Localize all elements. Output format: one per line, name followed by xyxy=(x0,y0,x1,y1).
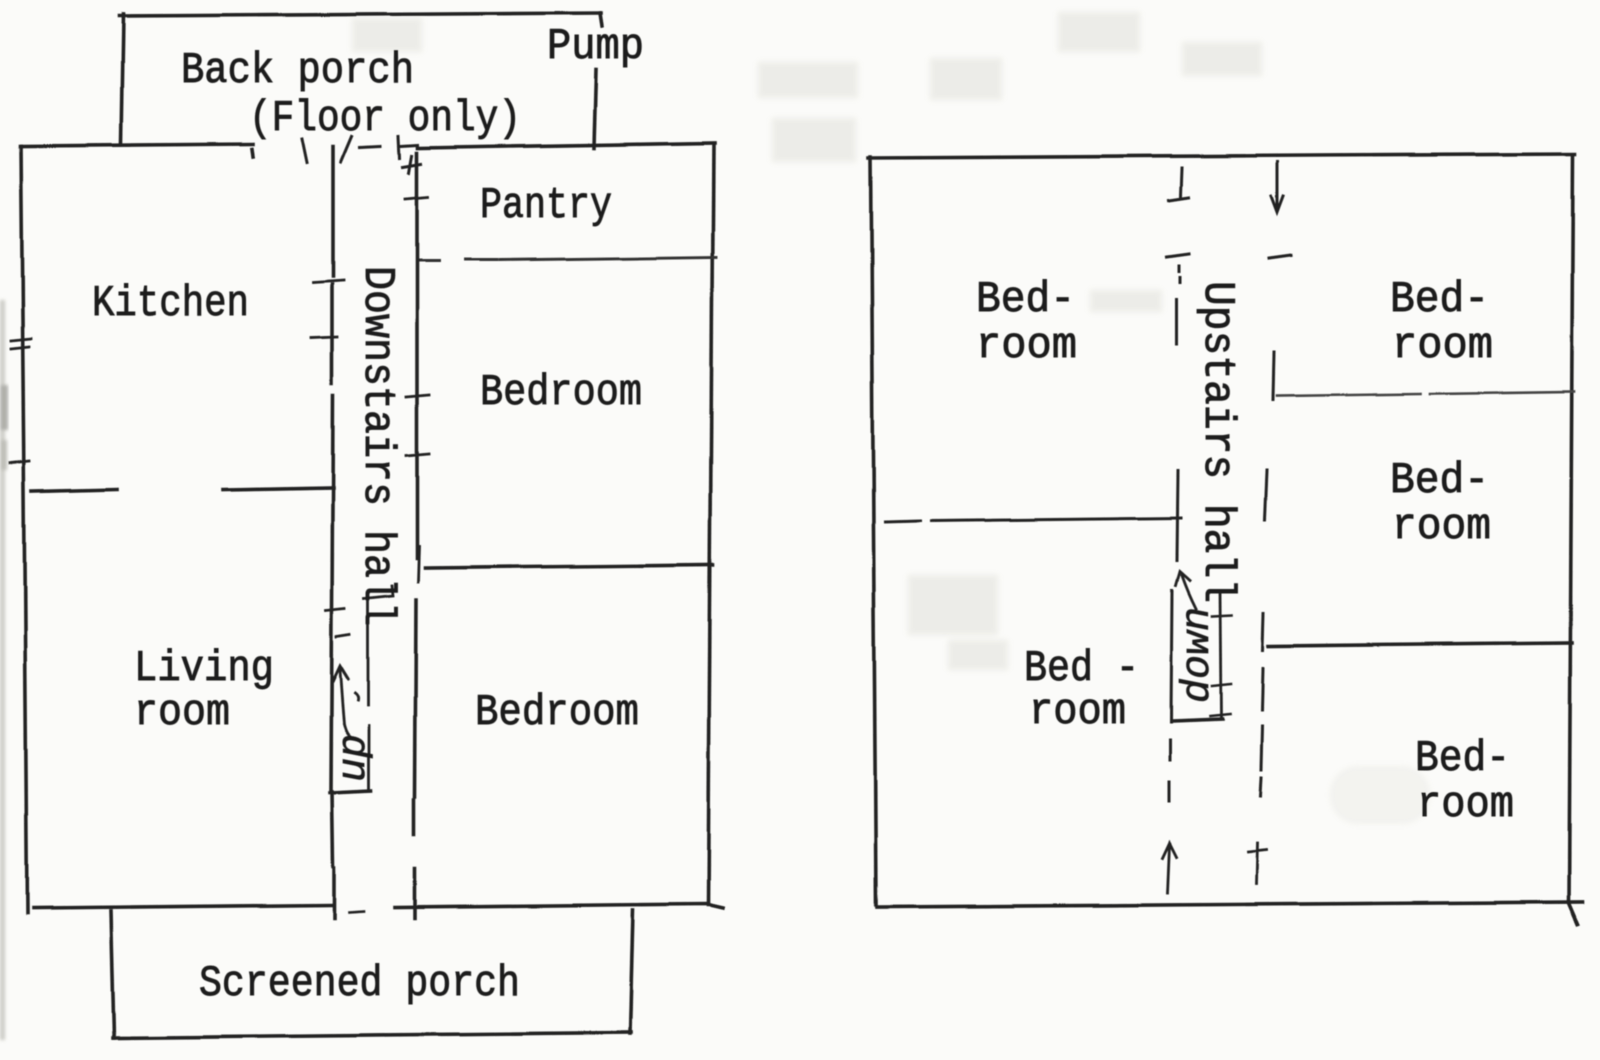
svg-text:Kitchen: Kitchen xyxy=(92,279,249,329)
svg-text:room: room xyxy=(1392,321,1493,371)
svg-text:Bed-: Bed- xyxy=(1390,275,1489,325)
svg-text:room: room xyxy=(976,321,1077,371)
svg-text:room: room xyxy=(134,688,230,738)
svg-text:Living: Living xyxy=(134,644,274,694)
svg-text:Pantry: Pantry xyxy=(480,181,612,231)
svg-text:Screened porch: Screened porch xyxy=(199,959,520,1009)
svg-text:Downstairs hall: Downstairs hall xyxy=(352,266,402,626)
svg-text:(Floor only): (Floor only) xyxy=(249,94,521,144)
svg-text:Bedroom: Bedroom xyxy=(475,688,639,738)
svg-text:Bedroom: Bedroom xyxy=(480,368,642,418)
svg-text:Pump: Pump xyxy=(547,22,644,72)
svg-text:up: up xyxy=(332,734,377,782)
svg-text:Back porch: Back porch xyxy=(181,46,414,96)
svg-text:Bed-: Bed- xyxy=(1415,734,1510,784)
svg-text:Upstairs hall: Upstairs hall xyxy=(1192,281,1242,603)
svg-text:Bed-: Bed- xyxy=(976,275,1075,325)
svg-text:room: room xyxy=(1392,502,1491,552)
svg-text:room: room xyxy=(1417,780,1514,830)
svg-text:down: down xyxy=(1176,607,1221,703)
svg-text:Bed-: Bed- xyxy=(1390,456,1489,506)
svg-text:room: room xyxy=(1029,687,1126,737)
